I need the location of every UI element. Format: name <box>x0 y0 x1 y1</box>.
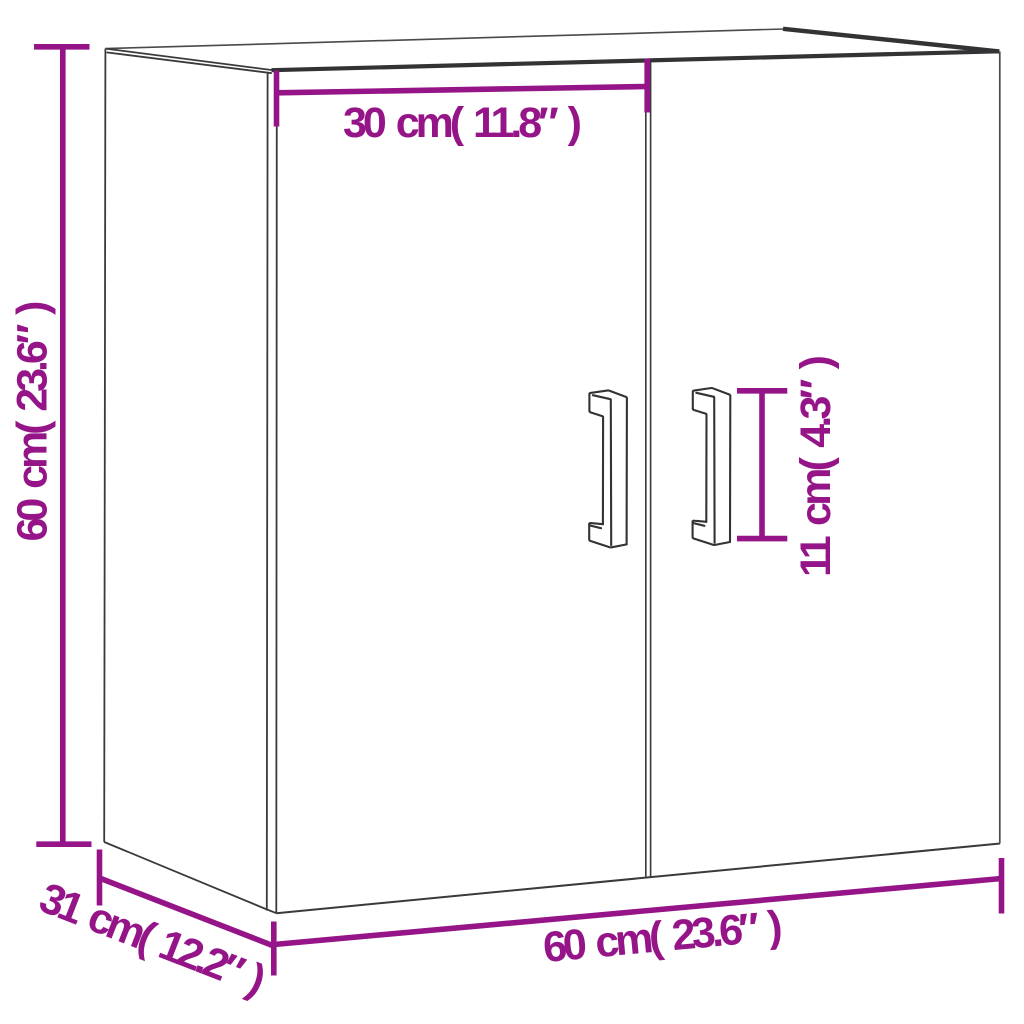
svg-text:60 cm( 23.6″ ): 60 cm( 23.6″ ) <box>9 301 57 542</box>
svg-text:30 cm( 11.8″ ): 30 cm( 11.8″ ) <box>343 99 582 147</box>
svg-text:11 cm( 4.3″ ): 11 cm( 4.3″ ) <box>792 355 840 577</box>
